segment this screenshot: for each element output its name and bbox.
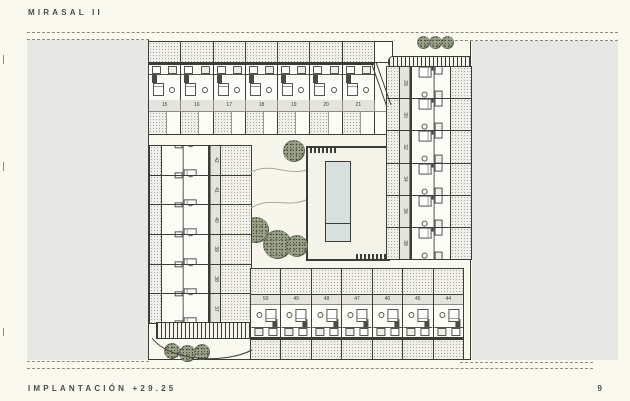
unit-number: 38	[400, 228, 410, 259]
garden-yard	[220, 235, 251, 264]
unit-floorplan	[281, 305, 310, 339]
unit-number: 17	[214, 100, 246, 111]
furniture-bed	[326, 309, 337, 322]
furniture-bed	[357, 309, 368, 322]
front-yard	[434, 339, 463, 359]
furniture-bed	[347, 83, 358, 96]
furniture-table	[331, 87, 337, 93]
furniture-bath	[376, 328, 385, 336]
rear-yard	[281, 269, 310, 295]
interior-wall	[403, 327, 432, 328]
core-block	[313, 75, 318, 83]
housing-unit	[373, 305, 402, 339]
furniture-closet	[184, 66, 193, 74]
furniture-closet	[329, 328, 338, 336]
front-drive	[278, 112, 310, 134]
furniture-bed	[183, 199, 196, 204]
deck-hatch-strip	[356, 254, 386, 259]
housing-unit	[278, 63, 310, 100]
furniture-bath	[265, 66, 274, 74]
furniture-bed	[387, 309, 398, 322]
front-drive	[310, 112, 342, 134]
furniture-closet	[451, 328, 460, 336]
housing-unit	[403, 305, 432, 339]
furniture-table	[363, 87, 369, 93]
furniture-table	[234, 87, 240, 93]
furniture-closet	[299, 328, 308, 336]
furniture-table	[317, 312, 323, 318]
garden-yard	[450, 196, 471, 227]
front-yard	[251, 339, 280, 359]
housing-unit	[410, 131, 450, 162]
right-unit-row: 36	[387, 196, 471, 228]
core-block	[346, 75, 351, 83]
core-block	[249, 75, 254, 83]
interior-wall	[434, 327, 463, 328]
furniture-table	[169, 87, 175, 93]
left-unit-row: 41	[150, 176, 251, 206]
bottom-unit-column: 45	[403, 269, 433, 359]
front-drive	[214, 112, 246, 134]
core-block	[281, 75, 286, 83]
unit-number: 21	[343, 100, 375, 111]
rear-yard	[434, 269, 463, 295]
garden-yard	[220, 176, 251, 205]
furniture-bath	[345, 328, 354, 336]
side-yard	[387, 67, 400, 98]
road-right	[472, 41, 618, 360]
furniture-table	[187, 235, 193, 236]
furniture-closet	[435, 131, 443, 139]
furniture-closet	[175, 202, 183, 204]
unit-number: 28	[400, 67, 410, 98]
left-unit-row: 38	[150, 265, 251, 295]
furniture-closet	[175, 261, 183, 263]
furniture-closet	[390, 328, 399, 336]
furniture-bed	[183, 288, 196, 293]
right-unit-row: 32	[387, 131, 471, 163]
garden-yard	[450, 228, 471, 259]
furniture-table	[378, 312, 384, 318]
housing-unit	[410, 99, 450, 130]
furniture-table	[187, 265, 193, 266]
side-yard	[150, 235, 162, 264]
page-title: MIRASAL II	[28, 8, 103, 17]
unit-number: 44	[434, 295, 463, 305]
interior-wall	[246, 74, 277, 75]
garden-yard	[220, 265, 251, 294]
unit-number: 38	[210, 265, 220, 294]
housing-unit	[410, 196, 450, 227]
unit-floorplan	[343, 63, 374, 100]
furniture-bath	[435, 155, 443, 163]
furniture-bath	[175, 265, 183, 267]
side-yard	[387, 196, 400, 227]
courtyard-garden	[250, 134, 391, 268]
housing-unit	[162, 265, 210, 294]
furniture-table	[266, 87, 272, 93]
bottom-unit-column: 47	[342, 269, 372, 359]
furniture-bath	[435, 123, 443, 131]
boundary-dashed-line	[27, 361, 149, 362]
furniture-bath	[201, 66, 210, 74]
unit-number: 30	[400, 99, 410, 130]
front-drive	[181, 112, 213, 134]
furniture-table	[298, 87, 304, 93]
furniture-bath	[362, 66, 371, 74]
furniture-bath	[435, 187, 443, 195]
interior-wall	[278, 74, 309, 75]
furniture-table	[187, 205, 193, 206]
unit-floorplan	[149, 63, 180, 100]
unit-floorplan	[251, 305, 280, 339]
furniture-closet	[435, 99, 443, 107]
furniture-bath	[435, 91, 443, 99]
furniture-table	[421, 220, 427, 226]
rear-yard	[312, 269, 341, 295]
garden-yard	[450, 164, 471, 195]
side-yard	[150, 146, 162, 175]
core-block	[184, 75, 189, 83]
furniture-bed	[418, 309, 429, 322]
bottom-unit-column: 50	[251, 269, 281, 359]
furniture-bath	[435, 251, 443, 259]
interior-wall	[149, 74, 180, 75]
left-unit-row: 37	[150, 294, 251, 323]
side-yard	[150, 205, 162, 234]
unit-number: 16	[181, 100, 213, 111]
rear-yard	[342, 269, 371, 295]
boundary-dashed-line	[27, 368, 593, 369]
side-yard	[387, 228, 400, 259]
interior-wall	[310, 74, 341, 75]
unit-number: 36	[400, 196, 410, 227]
interior-wall	[434, 67, 435, 98]
left-unit-row: 42	[150, 146, 251, 176]
interior-wall	[342, 327, 371, 328]
furniture-bath	[284, 328, 293, 336]
housing-unit	[251, 305, 280, 339]
unit-floorplan	[172, 294, 201, 323]
garden-yard	[450, 131, 471, 162]
unit-floorplan	[403, 305, 432, 339]
garden-yard	[450, 67, 471, 98]
furniture-bath	[330, 66, 339, 74]
front-yard	[342, 339, 371, 359]
housing-unit	[343, 63, 375, 100]
furniture-bed	[183, 258, 196, 263]
tree-icon	[283, 140, 305, 162]
unit-number: 46	[373, 295, 402, 305]
furniture-bath	[175, 176, 183, 178]
rear-yard	[310, 42, 342, 62]
unit-floorplan	[172, 146, 201, 175]
right-unit-row: 28	[387, 67, 471, 99]
furniture-table	[421, 252, 427, 258]
top-units-band	[149, 63, 392, 100]
interior-wall	[434, 164, 435, 195]
housing-unit	[410, 164, 450, 195]
front-paving	[181, 112, 199, 134]
boundary-dashed-line	[27, 32, 618, 33]
right-unit-row: 38	[387, 228, 471, 259]
garden-yard	[220, 294, 251, 323]
unit-floorplan	[414, 131, 445, 162]
furniture-closet	[346, 66, 355, 74]
rear-yard	[403, 269, 432, 295]
housing-unit	[181, 63, 213, 100]
furniture-bed	[418, 196, 431, 207]
furniture-table	[256, 312, 262, 318]
furniture-closet	[435, 228, 443, 236]
side-yard	[387, 99, 400, 130]
tree-icon	[286, 235, 308, 257]
furniture-bed	[218, 83, 229, 96]
furniture-bed	[418, 228, 431, 239]
housing-unit	[410, 228, 450, 259]
document-page: MIRASAL II 15161718192021 2	[0, 0, 630, 401]
front-paving	[343, 112, 361, 134]
unit-floorplan	[172, 205, 201, 234]
furniture-bath	[233, 66, 242, 74]
furniture-closet	[435, 164, 443, 172]
unit-number: 45	[403, 295, 432, 305]
furniture-bed	[448, 309, 459, 322]
front-paving	[149, 112, 167, 134]
left-unit-row: 39	[150, 235, 251, 265]
furniture-bath	[297, 66, 306, 74]
garden-yard	[450, 99, 471, 130]
unit-number: 37	[210, 294, 220, 323]
drawing-caption: IMPLANTACIÓN +29.25	[28, 384, 176, 393]
bottom-housing-row: 50494847464544	[250, 268, 464, 360]
margin-tick	[3, 55, 4, 64]
furniture-bed	[418, 99, 431, 110]
furniture-table	[408, 312, 414, 318]
furniture-closet	[268, 328, 277, 336]
furniture-closet	[435, 67, 443, 75]
furniture-bed	[418, 131, 431, 142]
housing-unit	[162, 294, 210, 323]
boundary-dashed-line	[460, 362, 593, 363]
furniture-bath	[175, 294, 183, 296]
interior-wall	[281, 327, 310, 328]
margin-tick	[3, 328, 4, 336]
unit-floorplan	[414, 196, 445, 227]
housing-unit	[162, 176, 210, 205]
core-block	[217, 75, 222, 83]
rear-yard	[343, 42, 375, 62]
unit-number: 40	[210, 205, 220, 234]
right-unit-row: 30	[387, 99, 471, 131]
pool-deck	[306, 146, 390, 261]
road-left	[27, 40, 148, 360]
unit-number: 49	[281, 295, 310, 305]
unit-floorplan	[342, 305, 371, 339]
unit-number-text: 36	[402, 208, 408, 214]
furniture-bed	[153, 83, 164, 96]
furniture-table	[421, 92, 427, 98]
unit-number-text: 32	[402, 144, 408, 150]
furniture-table	[187, 294, 193, 295]
swimming-pool	[325, 161, 351, 242]
side-yard	[150, 294, 162, 323]
furniture-closet	[421, 328, 430, 336]
side-yard	[150, 265, 162, 294]
furniture-table	[421, 188, 427, 194]
furniture-bed	[314, 83, 325, 96]
interior-wall	[434, 196, 435, 227]
interior-wall	[312, 327, 341, 328]
furniture-closet	[313, 66, 322, 74]
furniture-bed	[265, 309, 276, 322]
unit-number: 15	[149, 100, 181, 111]
housing-unit	[162, 205, 210, 234]
unit-floorplan	[278, 63, 309, 100]
bottom-unit-column: 48	[312, 269, 342, 359]
front-yard	[373, 339, 402, 359]
housing-unit	[162, 235, 210, 264]
furniture-closet	[360, 328, 369, 336]
unit-number-text: 34	[402, 176, 408, 182]
right-housing-column: 283032343638	[386, 66, 472, 260]
left-unit-row: 40	[150, 205, 251, 235]
rear-yard	[246, 42, 278, 62]
unit-number: 34	[400, 164, 410, 195]
unit-number: 41	[210, 176, 220, 205]
side-yard	[387, 131, 400, 162]
unit-floorplan	[246, 63, 277, 100]
front-drive	[149, 112, 181, 134]
furniture-bath	[437, 328, 446, 336]
rear-yard	[149, 42, 181, 62]
furniture-closet	[175, 291, 183, 293]
tree-icon	[164, 343, 180, 359]
furniture-bath	[175, 235, 183, 237]
garden-yard	[220, 146, 251, 175]
furniture-bath	[435, 219, 443, 227]
unit-floorplan	[414, 228, 445, 259]
furniture-bath	[406, 328, 415, 336]
furniture-closet	[249, 66, 258, 74]
housing-unit	[246, 63, 278, 100]
margin-tick	[3, 162, 4, 171]
deck-hatch-strip	[310, 148, 336, 153]
tree-icon	[441, 36, 454, 49]
unit-floorplan	[172, 265, 201, 294]
housing-unit	[410, 67, 450, 98]
interior-wall	[434, 131, 435, 162]
front-paving	[310, 112, 328, 134]
furniture-table	[187, 176, 193, 177]
front-paving	[246, 112, 264, 134]
unit-number-text: 42	[213, 158, 219, 164]
unit-floorplan	[310, 63, 341, 100]
interior-wall	[434, 99, 435, 130]
furniture-closet	[217, 66, 226, 74]
rear-yard	[278, 42, 310, 62]
housing-unit	[342, 305, 371, 339]
unit-floorplan	[373, 305, 402, 339]
unit-number: 32	[400, 131, 410, 162]
furniture-closet	[281, 66, 290, 74]
housing-unit	[162, 146, 210, 175]
unit-number: 48	[312, 295, 341, 305]
furniture-table	[286, 312, 292, 318]
front-yard	[281, 339, 310, 359]
unit-number-text: 30	[402, 112, 408, 118]
interior-wall	[181, 74, 212, 75]
front-yard	[312, 339, 341, 359]
side-yard	[150, 176, 162, 205]
unit-floorplan	[434, 305, 463, 339]
side-yard	[387, 164, 400, 195]
interior-wall	[251, 327, 280, 328]
furniture-table	[202, 87, 208, 93]
left-housing-column: 424140393837	[149, 145, 252, 324]
rear-yard	[373, 269, 402, 295]
interior-wall	[373, 327, 402, 328]
furniture-table	[439, 312, 445, 318]
top-housing-row: 15161718192021	[149, 41, 393, 135]
furniture-bed	[183, 169, 196, 174]
front-yard	[403, 339, 432, 359]
front-drives-band	[149, 112, 392, 134]
unit-number-text: 41	[213, 187, 219, 193]
housing-unit	[310, 63, 342, 100]
furniture-bed	[185, 83, 196, 96]
housing-unit	[149, 63, 181, 100]
furniture-bed	[418, 67, 431, 78]
unit-number: 42	[210, 146, 220, 175]
furniture-table	[421, 156, 427, 162]
tree-icon	[194, 344, 210, 360]
unit-floorplan	[181, 63, 212, 100]
furniture-bath	[168, 66, 177, 74]
rear-yard	[181, 42, 213, 62]
unit-number-text: 37	[213, 306, 219, 312]
housing-unit	[281, 305, 310, 339]
unit-number-text: 38	[402, 241, 408, 247]
furniture-closet	[175, 172, 183, 174]
unit-number: 39	[210, 235, 220, 264]
furniture-closet	[175, 232, 183, 234]
right-unit-row: 34	[387, 164, 471, 196]
housing-unit	[214, 63, 246, 100]
furniture-table	[187, 146, 193, 147]
interior-wall	[434, 228, 435, 259]
unit-number: 50	[251, 295, 280, 305]
front-paving	[278, 112, 296, 134]
furniture-bath	[175, 205, 183, 207]
unit-number-text: 38	[213, 276, 219, 282]
unit-number-text: 40	[213, 217, 219, 223]
bottom-unit-column: 44	[434, 269, 463, 359]
furniture-table	[421, 124, 427, 130]
unit-floorplan	[214, 63, 245, 100]
front-paving	[214, 112, 232, 134]
unit-floorplan	[172, 176, 201, 205]
furniture-bed	[282, 83, 293, 96]
furniture-bed	[418, 164, 431, 175]
unit-floorplan	[172, 235, 201, 264]
front-drive	[343, 112, 375, 134]
furniture-bed	[250, 83, 261, 96]
unit-number: 20	[310, 100, 342, 111]
rear-yard	[251, 269, 280, 295]
furniture-bath	[254, 328, 263, 336]
unit-number: 18	[246, 100, 278, 111]
